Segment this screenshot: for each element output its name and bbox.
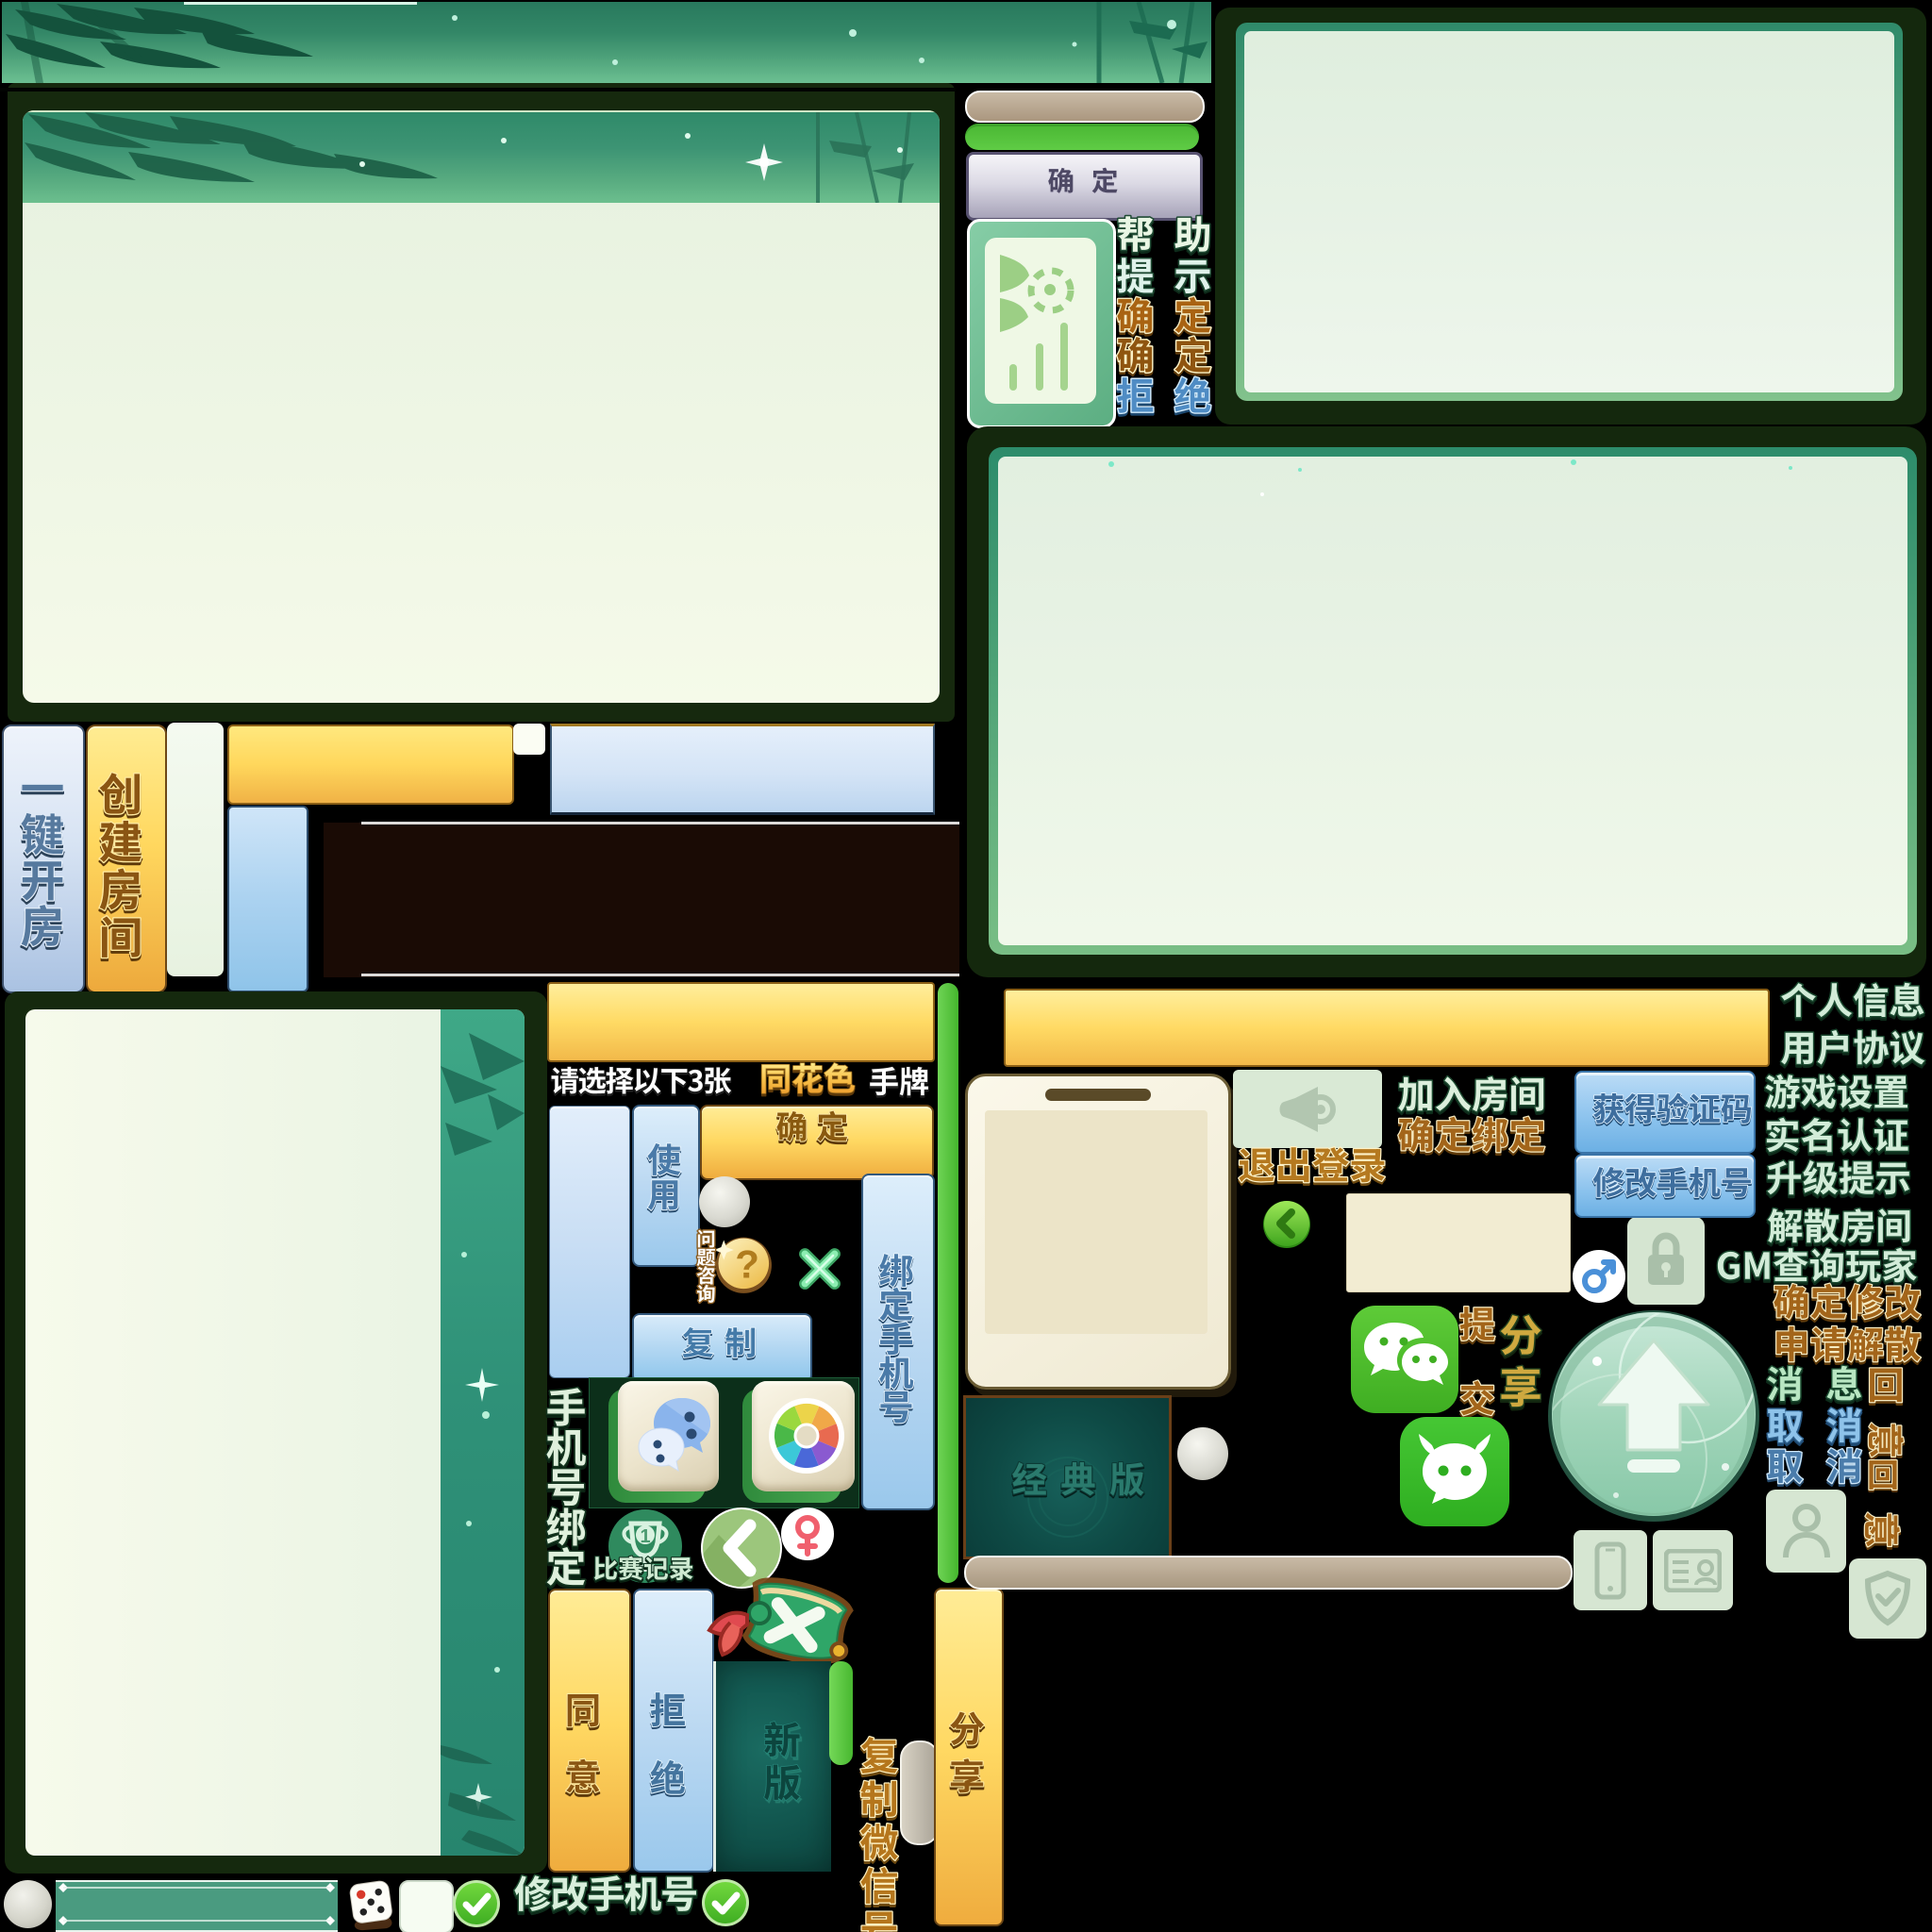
svg-text:1: 1 bbox=[640, 1526, 650, 1547]
svg-text:?: ? bbox=[735, 1242, 759, 1287]
